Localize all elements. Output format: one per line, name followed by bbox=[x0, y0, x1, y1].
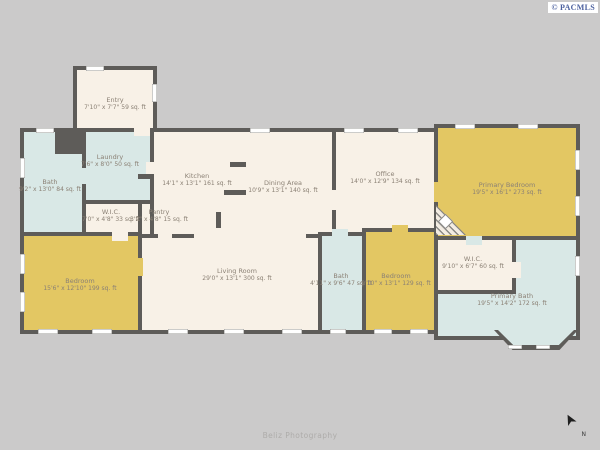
window-marker bbox=[92, 329, 112, 334]
door-gap bbox=[434, 182, 443, 202]
label-laundry: Laundry 7'6" x 8'0" 50 sq. ft bbox=[81, 153, 139, 169]
floorplan-canvas: © PACMLS bbox=[0, 0, 600, 450]
window-marker bbox=[224, 329, 244, 334]
open-plan-gap bbox=[194, 233, 306, 239]
window-marker bbox=[86, 66, 104, 71]
window-marker bbox=[20, 254, 25, 274]
window-marker bbox=[250, 128, 270, 133]
window-marker bbox=[152, 84, 157, 102]
label-bedroom-left: Bedroom 15'6" x 12'10" 199 sq. ft bbox=[43, 277, 116, 293]
north-arrow: ➤ bbox=[561, 410, 580, 428]
door-gap bbox=[392, 225, 408, 234]
window-marker bbox=[398, 128, 418, 133]
pacmls-watermark: © PACMLS bbox=[548, 2, 598, 13]
door-gap bbox=[332, 229, 348, 238]
photography-credit: Beliz Photography bbox=[0, 431, 600, 440]
label-office: Office 14'0" x 12'9" 134 sq. ft bbox=[350, 170, 419, 186]
wall-stub bbox=[224, 190, 246, 195]
window-marker bbox=[20, 158, 25, 178]
window-marker bbox=[536, 345, 550, 349]
label-primary-bath: Primary Bath 19'5" x 14'2" 172 sq. ft bbox=[477, 292, 546, 308]
window-marker bbox=[330, 329, 346, 334]
door-gap bbox=[512, 262, 521, 278]
window-marker bbox=[575, 150, 580, 170]
window-marker bbox=[20, 292, 25, 312]
wall-stub bbox=[216, 212, 221, 228]
window-marker bbox=[518, 124, 538, 129]
wall-stub bbox=[230, 162, 246, 167]
door-gap bbox=[330, 190, 339, 210]
window-marker bbox=[455, 124, 475, 129]
label-kitchen: Kitchen 14'1" x 13'1" 161 sq. ft bbox=[162, 172, 231, 188]
door-gap bbox=[134, 258, 143, 276]
door-gap bbox=[134, 127, 150, 136]
window-marker bbox=[575, 256, 580, 276]
label-bath-left: Bath 9'2" x 13'0" 84 sq. ft bbox=[19, 178, 81, 194]
window-marker bbox=[168, 329, 188, 334]
window-marker bbox=[344, 128, 364, 133]
north-label: N bbox=[582, 431, 587, 438]
label-living: Living Room 29'0" x 13'1" 300 sq. ft bbox=[202, 267, 271, 283]
north-arrow-icon: ➤ N bbox=[562, 412, 588, 438]
label-dining: Dining Area 10'9" x 13'1" 140 sq. ft bbox=[248, 179, 317, 195]
utility-block bbox=[55, 132, 85, 154]
door-gap bbox=[466, 236, 482, 245]
label-primary-bedroom: Primary Bedroom 19'5" x 16'1" 273 sq. ft bbox=[472, 181, 541, 197]
window-marker bbox=[36, 128, 54, 133]
window-marker bbox=[575, 196, 580, 216]
window-marker bbox=[38, 329, 58, 334]
label-entry: Entry 7'10" x 7'7" 59 sq. ft bbox=[84, 96, 146, 112]
wall-stub bbox=[138, 174, 154, 179]
label-pantry: Pantry 3'2" x 4'8" 15 sq. ft bbox=[130, 208, 188, 224]
room-living bbox=[138, 234, 336, 334]
door-gap bbox=[112, 232, 128, 241]
label-bedroom-middle: Bedroom 9'10" x 13'1" 129 sq. ft bbox=[361, 272, 430, 288]
window-marker bbox=[282, 329, 302, 334]
window-marker bbox=[410, 329, 428, 334]
window-marker bbox=[508, 345, 522, 349]
window-marker bbox=[374, 329, 392, 334]
door-gap bbox=[158, 232, 172, 241]
label-wic-right: W.I.C. 9'10" x 6'7" 60 sq. ft bbox=[442, 255, 504, 271]
